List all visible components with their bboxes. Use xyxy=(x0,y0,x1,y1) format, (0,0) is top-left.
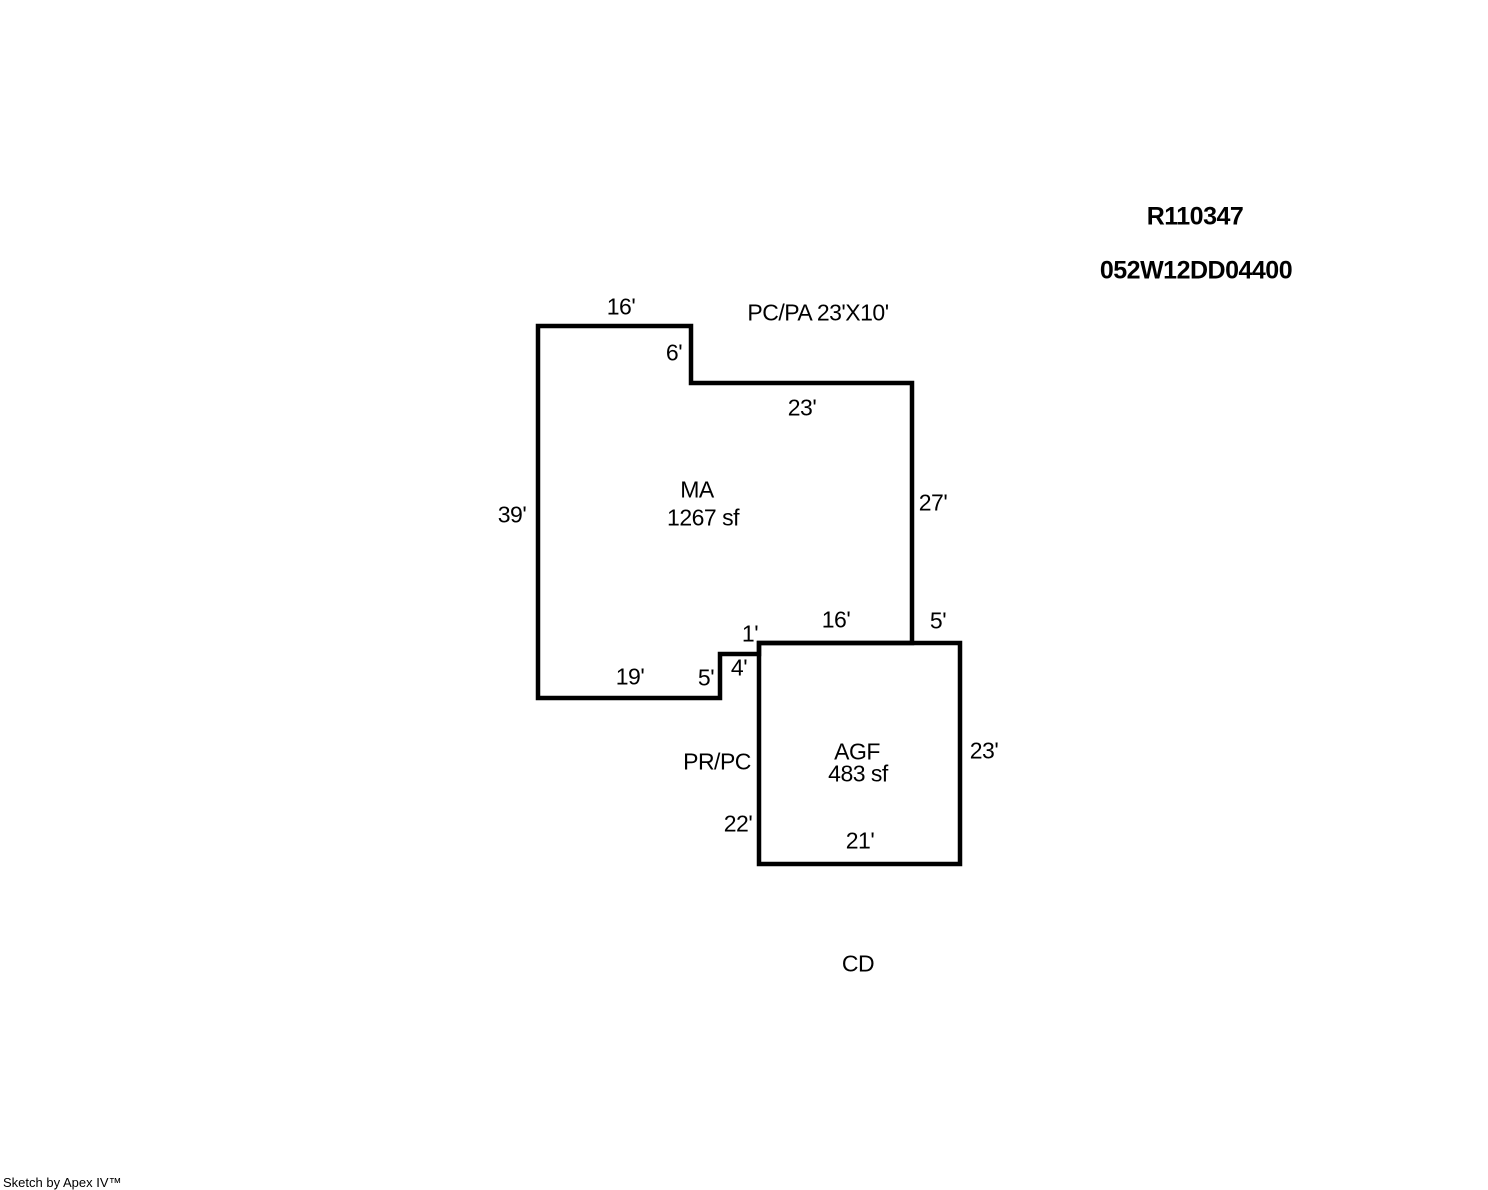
dim-ma-top: 16' xyxy=(607,296,635,319)
dim-agf-right: 23' xyxy=(970,740,998,763)
record-id: R110347 xyxy=(1147,205,1244,230)
annotation-patio: PC/PA 23'X10' xyxy=(747,302,888,325)
dim-ma-bottom-right: 16' xyxy=(822,609,850,632)
sketch-page: R110347 052W12DD04400 16' 6' 23' 27' 39'… xyxy=(0,0,1488,1190)
dim-ma-notch-small: 1' xyxy=(742,623,758,646)
floor-plan-drawing xyxy=(0,0,1488,1190)
dim-agf-top-overhang: 5' xyxy=(930,610,946,633)
dim-ma-step-down: 6' xyxy=(666,342,682,365)
area-code-ma: MA xyxy=(680,479,714,502)
dim-ma-upper-right: 23' xyxy=(788,397,816,420)
area-size-agf: 483 sf xyxy=(828,763,888,786)
dim-ma-bottom-left: 19' xyxy=(616,666,644,689)
dim-ma-left: 39' xyxy=(498,504,526,527)
annotation-porch: PR/PC xyxy=(683,751,751,774)
area-size-ma: 1267 sf xyxy=(667,507,739,530)
parcel-id: 052W12DD04400 xyxy=(1100,259,1292,284)
sketch-credit: Sketch by Apex IV™ xyxy=(3,1176,122,1189)
annotation-deck: CD xyxy=(842,953,874,976)
dim-ma-notch-vertical: 5' xyxy=(698,667,714,690)
dim-agf-left: 22' xyxy=(724,813,752,836)
dim-agf-bottom: 21' xyxy=(846,830,874,853)
dim-ma-right: 27' xyxy=(919,492,947,515)
dim-ma-notch-horizontal: 4' xyxy=(731,657,747,680)
